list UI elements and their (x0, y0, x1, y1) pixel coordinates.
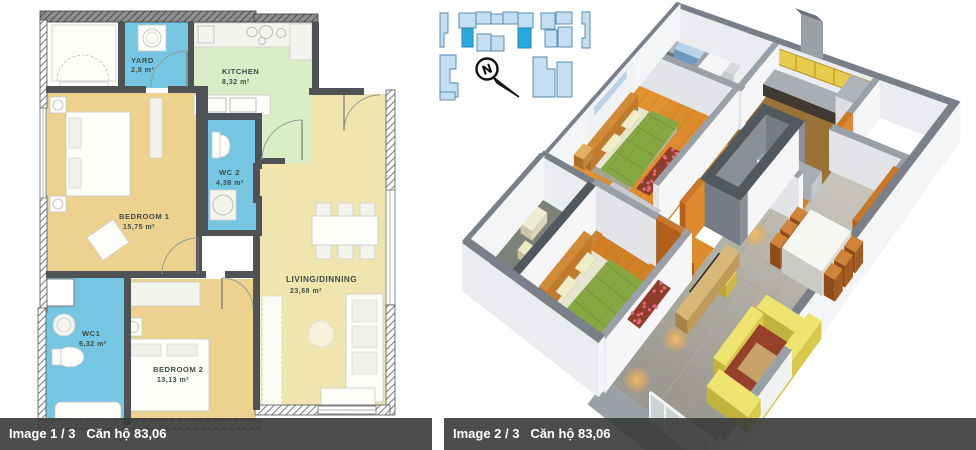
svg-text:KITCHEN: KITCHEN (222, 67, 259, 76)
svg-text:15,75 m²: 15,75 m² (123, 224, 155, 231)
svg-text:23,68 m²: 23,68 m² (290, 288, 322, 295)
svg-text:6,32 m²: 6,32 m² (79, 341, 107, 348)
svg-text:WC1: WC1 (82, 329, 101, 338)
svg-text:WC 2: WC 2 (219, 168, 240, 177)
svg-text:2,8 m²: 2,8 m² (131, 67, 154, 74)
svg-text:BEDROOM 1: BEDROOM 1 (119, 212, 170, 221)
svg-text:4,38 m²: 4,38 m² (216, 180, 244, 187)
svg-text:BEDROOM 2: BEDROOM 2 (153, 365, 204, 374)
svg-text:LIVING/DINNING: LIVING/DINNING (286, 275, 357, 284)
svg-text:13,13 m²: 13,13 m² (157, 377, 189, 384)
svg-text:8,32 m²: 8,32 m² (222, 79, 250, 86)
svg-text:YARD: YARD (131, 56, 154, 65)
